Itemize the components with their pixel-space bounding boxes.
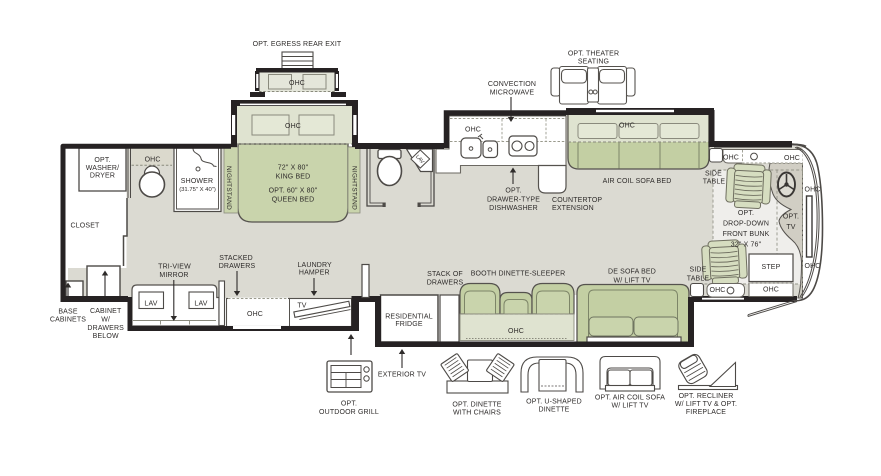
svg-text:W/ LIFT TV: W/ LIFT TV	[611, 403, 648, 410]
svg-text:OPT. AIR COIL SOFA: OPT. AIR COIL SOFA	[595, 395, 665, 402]
svg-text:STACK OF: STACK OF	[427, 271, 463, 278]
svg-text:OHC: OHC	[289, 80, 305, 87]
svg-text:AIR COIL SOFA BED: AIR COIL SOFA BED	[603, 178, 672, 185]
svg-text:BELOW: BELOW	[93, 333, 119, 340]
svg-text:FRONT BUNK: FRONT BUNK	[723, 231, 770, 238]
svg-text:QUEEN BED: QUEEN BED	[272, 197, 315, 204]
svg-text:W/ LIFT TV & OPT.: W/ LIFT TV & OPT.	[675, 401, 737, 408]
svg-text:TABLE: TABLE	[703, 179, 726, 186]
svg-text:OPT.: OPT.	[783, 214, 799, 221]
svg-text:BASE: BASE	[58, 308, 77, 315]
svg-text:FRIDGE: FRIDGE	[395, 321, 423, 328]
svg-text:OHC: OHC	[247, 311, 263, 318]
svg-text:OPT. RECLINER: OPT. RECLINER	[679, 393, 734, 400]
svg-text:OPT.: OPT.	[341, 401, 357, 408]
svg-text:KING BED: KING BED	[276, 174, 311, 181]
svg-text:OHC: OHC	[465, 127, 481, 134]
svg-text:OHC: OHC	[285, 123, 301, 130]
svg-text:FIREPLACE: FIREPLACE	[686, 409, 726, 416]
svg-text:DRAWERS: DRAWERS	[219, 263, 256, 270]
svg-text:TV: TV	[786, 224, 795, 231]
svg-text:WITH CHAIRS: WITH CHAIRS	[453, 410, 501, 417]
svg-text:OPT. 60" X 80": OPT. 60" X 80"	[269, 188, 318, 195]
svg-text:STEP: STEP	[762, 264, 781, 271]
svg-text:OPT. DINETTE: OPT. DINETTE	[452, 402, 501, 409]
svg-text:DRAWER-TYPE: DRAWER-TYPE	[487, 197, 540, 204]
svg-text:OPT.: OPT.	[738, 210, 754, 217]
svg-text:W/ LIFT TV: W/ LIFT TV	[613, 278, 650, 285]
svg-text:OPT. THEATER: OPT. THEATER	[568, 51, 619, 58]
svg-text:OPT.: OPT.	[505, 188, 521, 195]
svg-text:HAMPER: HAMPER	[299, 270, 330, 277]
svg-text:NIGHTSTAND: NIGHTSTAND	[351, 166, 358, 210]
svg-text:NIGHTSTAND: NIGHTSTAND	[225, 166, 232, 210]
svg-text:SIDE: SIDE	[705, 171, 722, 178]
svg-text:OUTDOOR GRILL: OUTDOOR GRILL	[319, 409, 379, 416]
svg-text:DRAWERS: DRAWERS	[427, 279, 464, 286]
svg-text:TABLE: TABLE	[687, 276, 710, 283]
svg-text:W/: W/	[101, 316, 110, 323]
svg-text:STACKED: STACKED	[219, 255, 253, 262]
svg-text:CLOSET: CLOSET	[71, 223, 100, 230]
svg-text:MICROWAVE: MICROWAVE	[490, 90, 535, 97]
svg-text:OHC: OHC	[709, 287, 725, 294]
svg-text:COUNTERTOP: COUNTERTOP	[552, 197, 602, 204]
svg-text:DROP-DOWN: DROP-DOWN	[723, 221, 769, 228]
svg-text:TRI-VIEW: TRI-VIEW	[158, 264, 191, 271]
svg-text:DISHWASHER: DISHWASHER	[489, 205, 538, 212]
svg-text:CONVECTION: CONVECTION	[488, 81, 536, 88]
svg-text:OPT. EGRESS REAR EXIT: OPT. EGRESS REAR EXIT	[253, 41, 342, 48]
svg-text:SHOWER: SHOWER	[181, 178, 213, 185]
svg-text:CABINETS: CABINETS	[50, 317, 86, 324]
svg-text:SIDE: SIDE	[690, 267, 707, 274]
svg-text:32" X 76": 32" X 76"	[731, 242, 762, 249]
svg-text:72" X 80": 72" X 80"	[278, 165, 309, 172]
svg-text:LAUNDRY: LAUNDRY	[298, 262, 333, 269]
svg-text:EXTERIOR TV: EXTERIOR TV	[378, 372, 426, 379]
svg-text:DRYER: DRYER	[90, 173, 115, 180]
svg-text:CABINET: CABINET	[90, 308, 122, 315]
svg-text:OHC: OHC	[508, 328, 524, 335]
svg-text:DINETTE: DINETTE	[539, 407, 570, 414]
svg-text:OHC: OHC	[763, 287, 779, 294]
svg-text:OPT.: OPT.	[94, 157, 110, 164]
svg-text:(31.75" X 40"): (31.75" X 40")	[179, 187, 216, 193]
svg-text:EXTENSION: EXTENSION	[552, 205, 594, 212]
svg-text:LAV: LAV	[194, 300, 207, 307]
svg-text:TV: TV	[297, 303, 306, 310]
svg-text:OHC: OHC	[784, 155, 800, 162]
svg-text:RESIDENTIAL: RESIDENTIAL	[385, 313, 433, 320]
svg-text:MIRROR: MIRROR	[159, 272, 188, 279]
svg-text:DRAWERS: DRAWERS	[87, 325, 124, 332]
svg-text:WASHER/: WASHER/	[86, 165, 119, 172]
svg-text:LAV: LAV	[144, 300, 157, 307]
svg-text:DE SOFA BED: DE SOFA BED	[608, 269, 656, 276]
svg-text:OHC: OHC	[145, 157, 161, 164]
svg-text:OHC: OHC	[723, 155, 739, 162]
svg-text:OHC: OHC	[619, 123, 635, 130]
svg-text:SEATING: SEATING	[578, 58, 609, 65]
svg-text:OPT. U-SHAPED: OPT. U-SHAPED	[526, 399, 582, 406]
svg-text:BOOTH DINETTE-SLEEPER: BOOTH DINETTE-SLEEPER	[471, 271, 566, 278]
